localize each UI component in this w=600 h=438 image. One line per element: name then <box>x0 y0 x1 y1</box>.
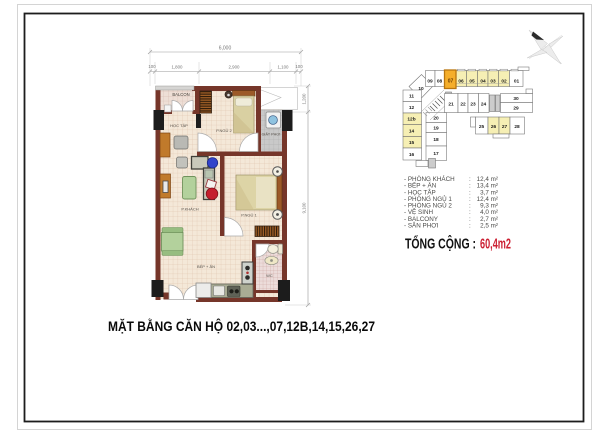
svg-text:27: 27 <box>502 124 508 130</box>
svg-text::: : <box>469 223 471 230</box>
svg-text:WC: WC <box>266 273 273 278</box>
svg-text:05: 05 <box>469 79 475 85</box>
svg-text:26: 26 <box>491 124 497 130</box>
svg-text:GIẶT PHƠI: GIẶT PHƠI <box>262 133 281 137</box>
svg-text:06: 06 <box>458 79 464 85</box>
svg-text:100: 100 <box>148 64 156 69</box>
svg-text:2,5 m²: 2,5 m² <box>480 223 498 230</box>
svg-text:10: 10 <box>418 86 424 92</box>
svg-text:08: 08 <box>437 79 443 85</box>
svg-text:24: 24 <box>481 102 487 108</box>
svg-text:15: 15 <box>409 140 415 146</box>
svg-text:- SÂN PHƠI: - SÂN PHƠI <box>404 221 439 230</box>
svg-text:1,100: 1,100 <box>278 65 290 70</box>
svg-text:20: 20 <box>433 116 439 122</box>
svg-text:100: 100 <box>295 64 303 69</box>
svg-text:19: 19 <box>433 126 439 132</box>
svg-text:TỔNG CỘNG :: TỔNG CỘNG : <box>405 235 476 253</box>
svg-text:16: 16 <box>409 152 415 158</box>
svg-text:BẾP + ĂN: BẾP + ĂN <box>197 264 215 269</box>
svg-text:25: 25 <box>479 124 485 130</box>
svg-text:1,800: 1,800 <box>172 65 184 70</box>
svg-text:04: 04 <box>480 79 486 85</box>
svg-text:21: 21 <box>448 102 454 108</box>
svg-text:09: 09 <box>427 79 433 85</box>
svg-text:12: 12 <box>409 105 415 111</box>
svg-text:6,000: 6,000 <box>219 46 232 52</box>
svg-text:HỌC TẬP: HỌC TẬP <box>170 123 188 128</box>
svg-text:03: 03 <box>490 79 496 85</box>
svg-text:22: 22 <box>460 102 466 108</box>
svg-text:14: 14 <box>409 129 415 135</box>
svg-text:1,200: 1,200 <box>302 93 307 105</box>
svg-text:28: 28 <box>514 124 520 130</box>
svg-text:01: 01 <box>514 79 520 85</box>
svg-text:17: 17 <box>433 151 439 157</box>
svg-text:2,900: 2,900 <box>229 65 241 70</box>
svg-text:- VỆ SINH: - VỆ SINH <box>404 207 433 216</box>
svg-text:9,100: 9,100 <box>302 202 307 214</box>
svg-text:P.KHÁCH: P.KHÁCH <box>181 207 198 212</box>
svg-text:02: 02 <box>501 79 507 85</box>
svg-text:07: 07 <box>448 79 454 85</box>
svg-text:11: 11 <box>409 94 414 100</box>
svg-text:MẶT BẰNG CĂN HỘ 02,03...,07,12: MẶT BẰNG CĂN HỘ 02,03...,07,12B,14,15,26… <box>108 319 375 334</box>
svg-text:18: 18 <box>433 137 439 143</box>
svg-text:60,4m2: 60,4m2 <box>480 237 511 253</box>
svg-text:29: 29 <box>513 106 519 112</box>
svg-text:P.NGỦ 1: P.NGỦ 1 <box>241 213 257 218</box>
svg-text:P.NGỦ 2: P.NGỦ 2 <box>216 128 232 133</box>
svg-text:12b: 12b <box>407 117 415 123</box>
svg-text:BALCON: BALCON <box>172 92 189 97</box>
svg-text:23: 23 <box>470 102 476 108</box>
svg-text:- PHÒNG NGỦ 1: - PHÒNG NGỦ 1 <box>404 194 452 203</box>
svg-text:30: 30 <box>513 96 519 102</box>
